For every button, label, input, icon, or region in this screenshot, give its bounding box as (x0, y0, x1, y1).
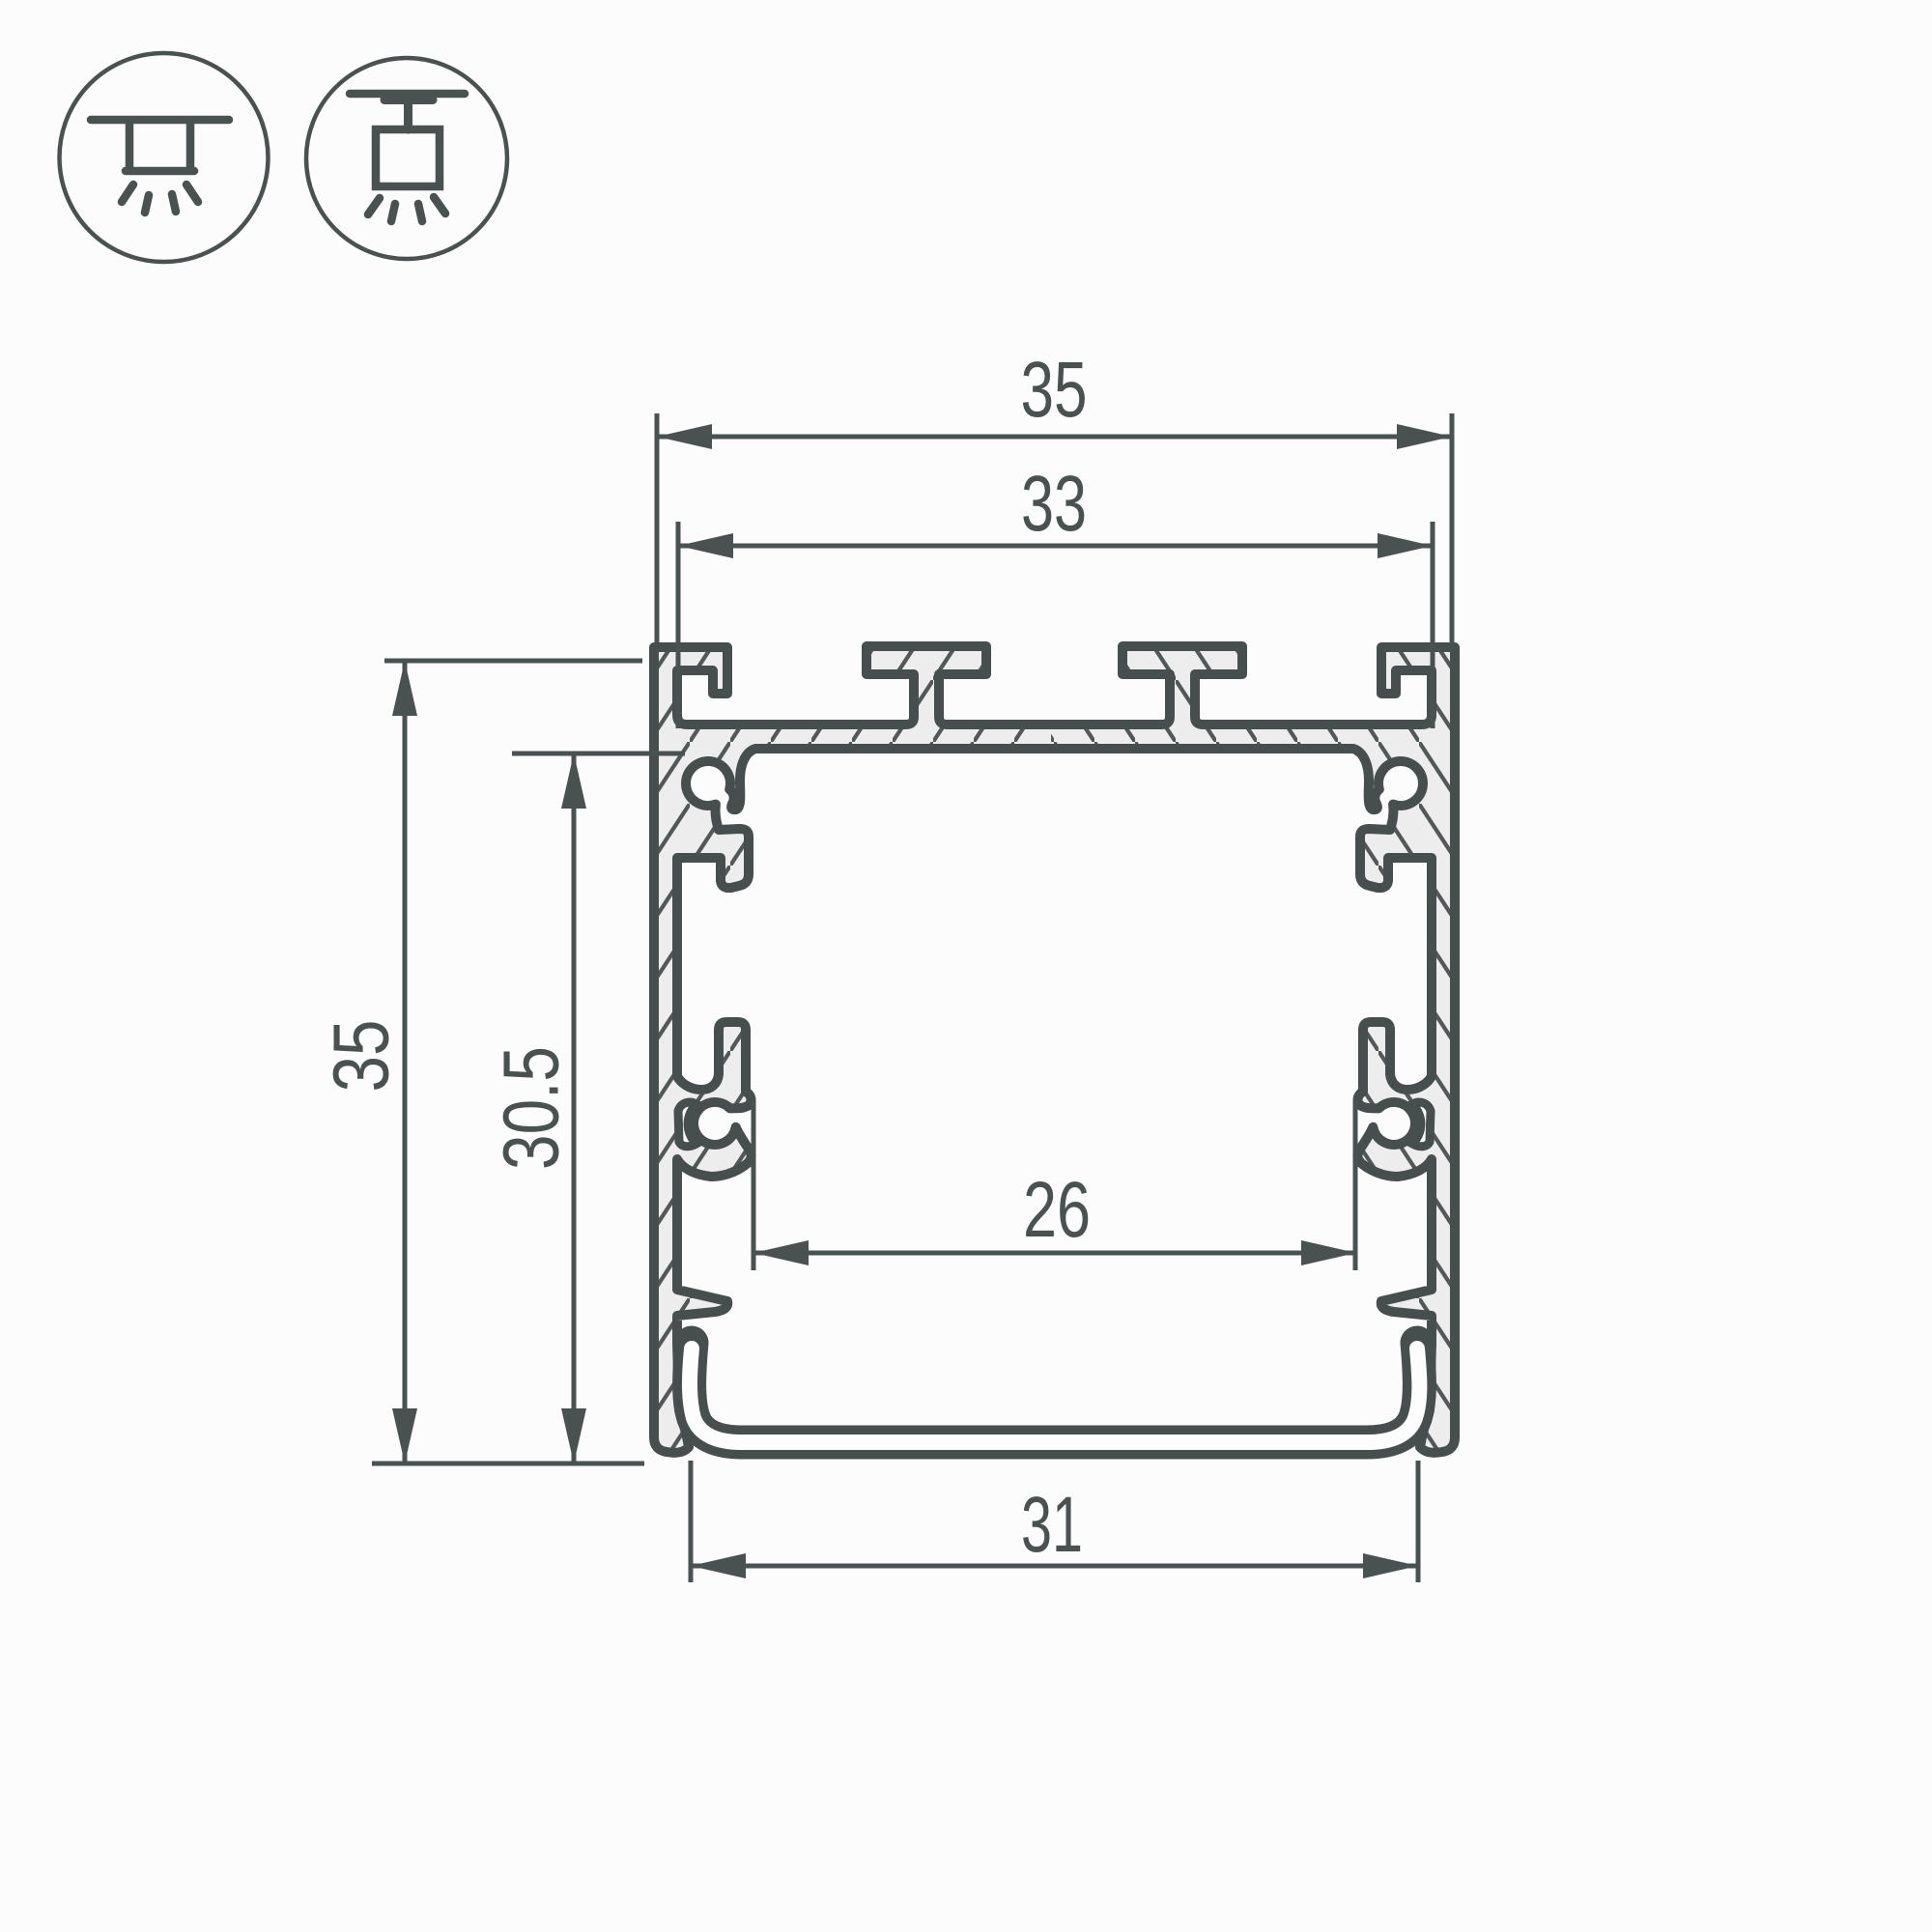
svg-text:33: 33 (1021, 460, 1087, 548)
svg-text:35: 35 (1021, 346, 1088, 434)
svg-text:35: 35 (318, 1020, 406, 1093)
svg-text:31: 31 (1021, 1481, 1083, 1569)
svg-text:26: 26 (1023, 1166, 1091, 1254)
svg-text:30.5: 30.5 (488, 1046, 576, 1170)
